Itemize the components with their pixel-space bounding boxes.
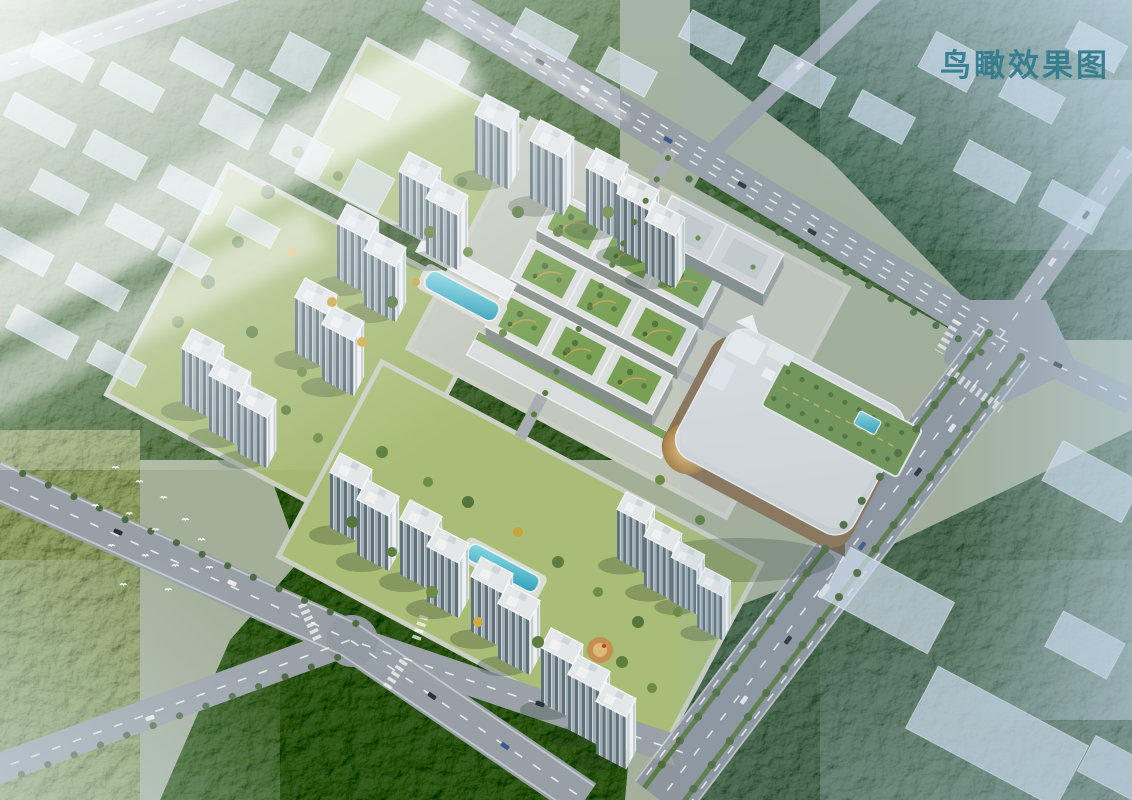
aerial-rendering: 鸟瞰效果图 (0, 0, 1132, 800)
caption-title: 鸟瞰效果图 (940, 48, 1110, 84)
haze-bottom-left (0, 560, 280, 800)
aerial-rendering-page: 鸟瞰效果图 (0, 0, 1132, 800)
